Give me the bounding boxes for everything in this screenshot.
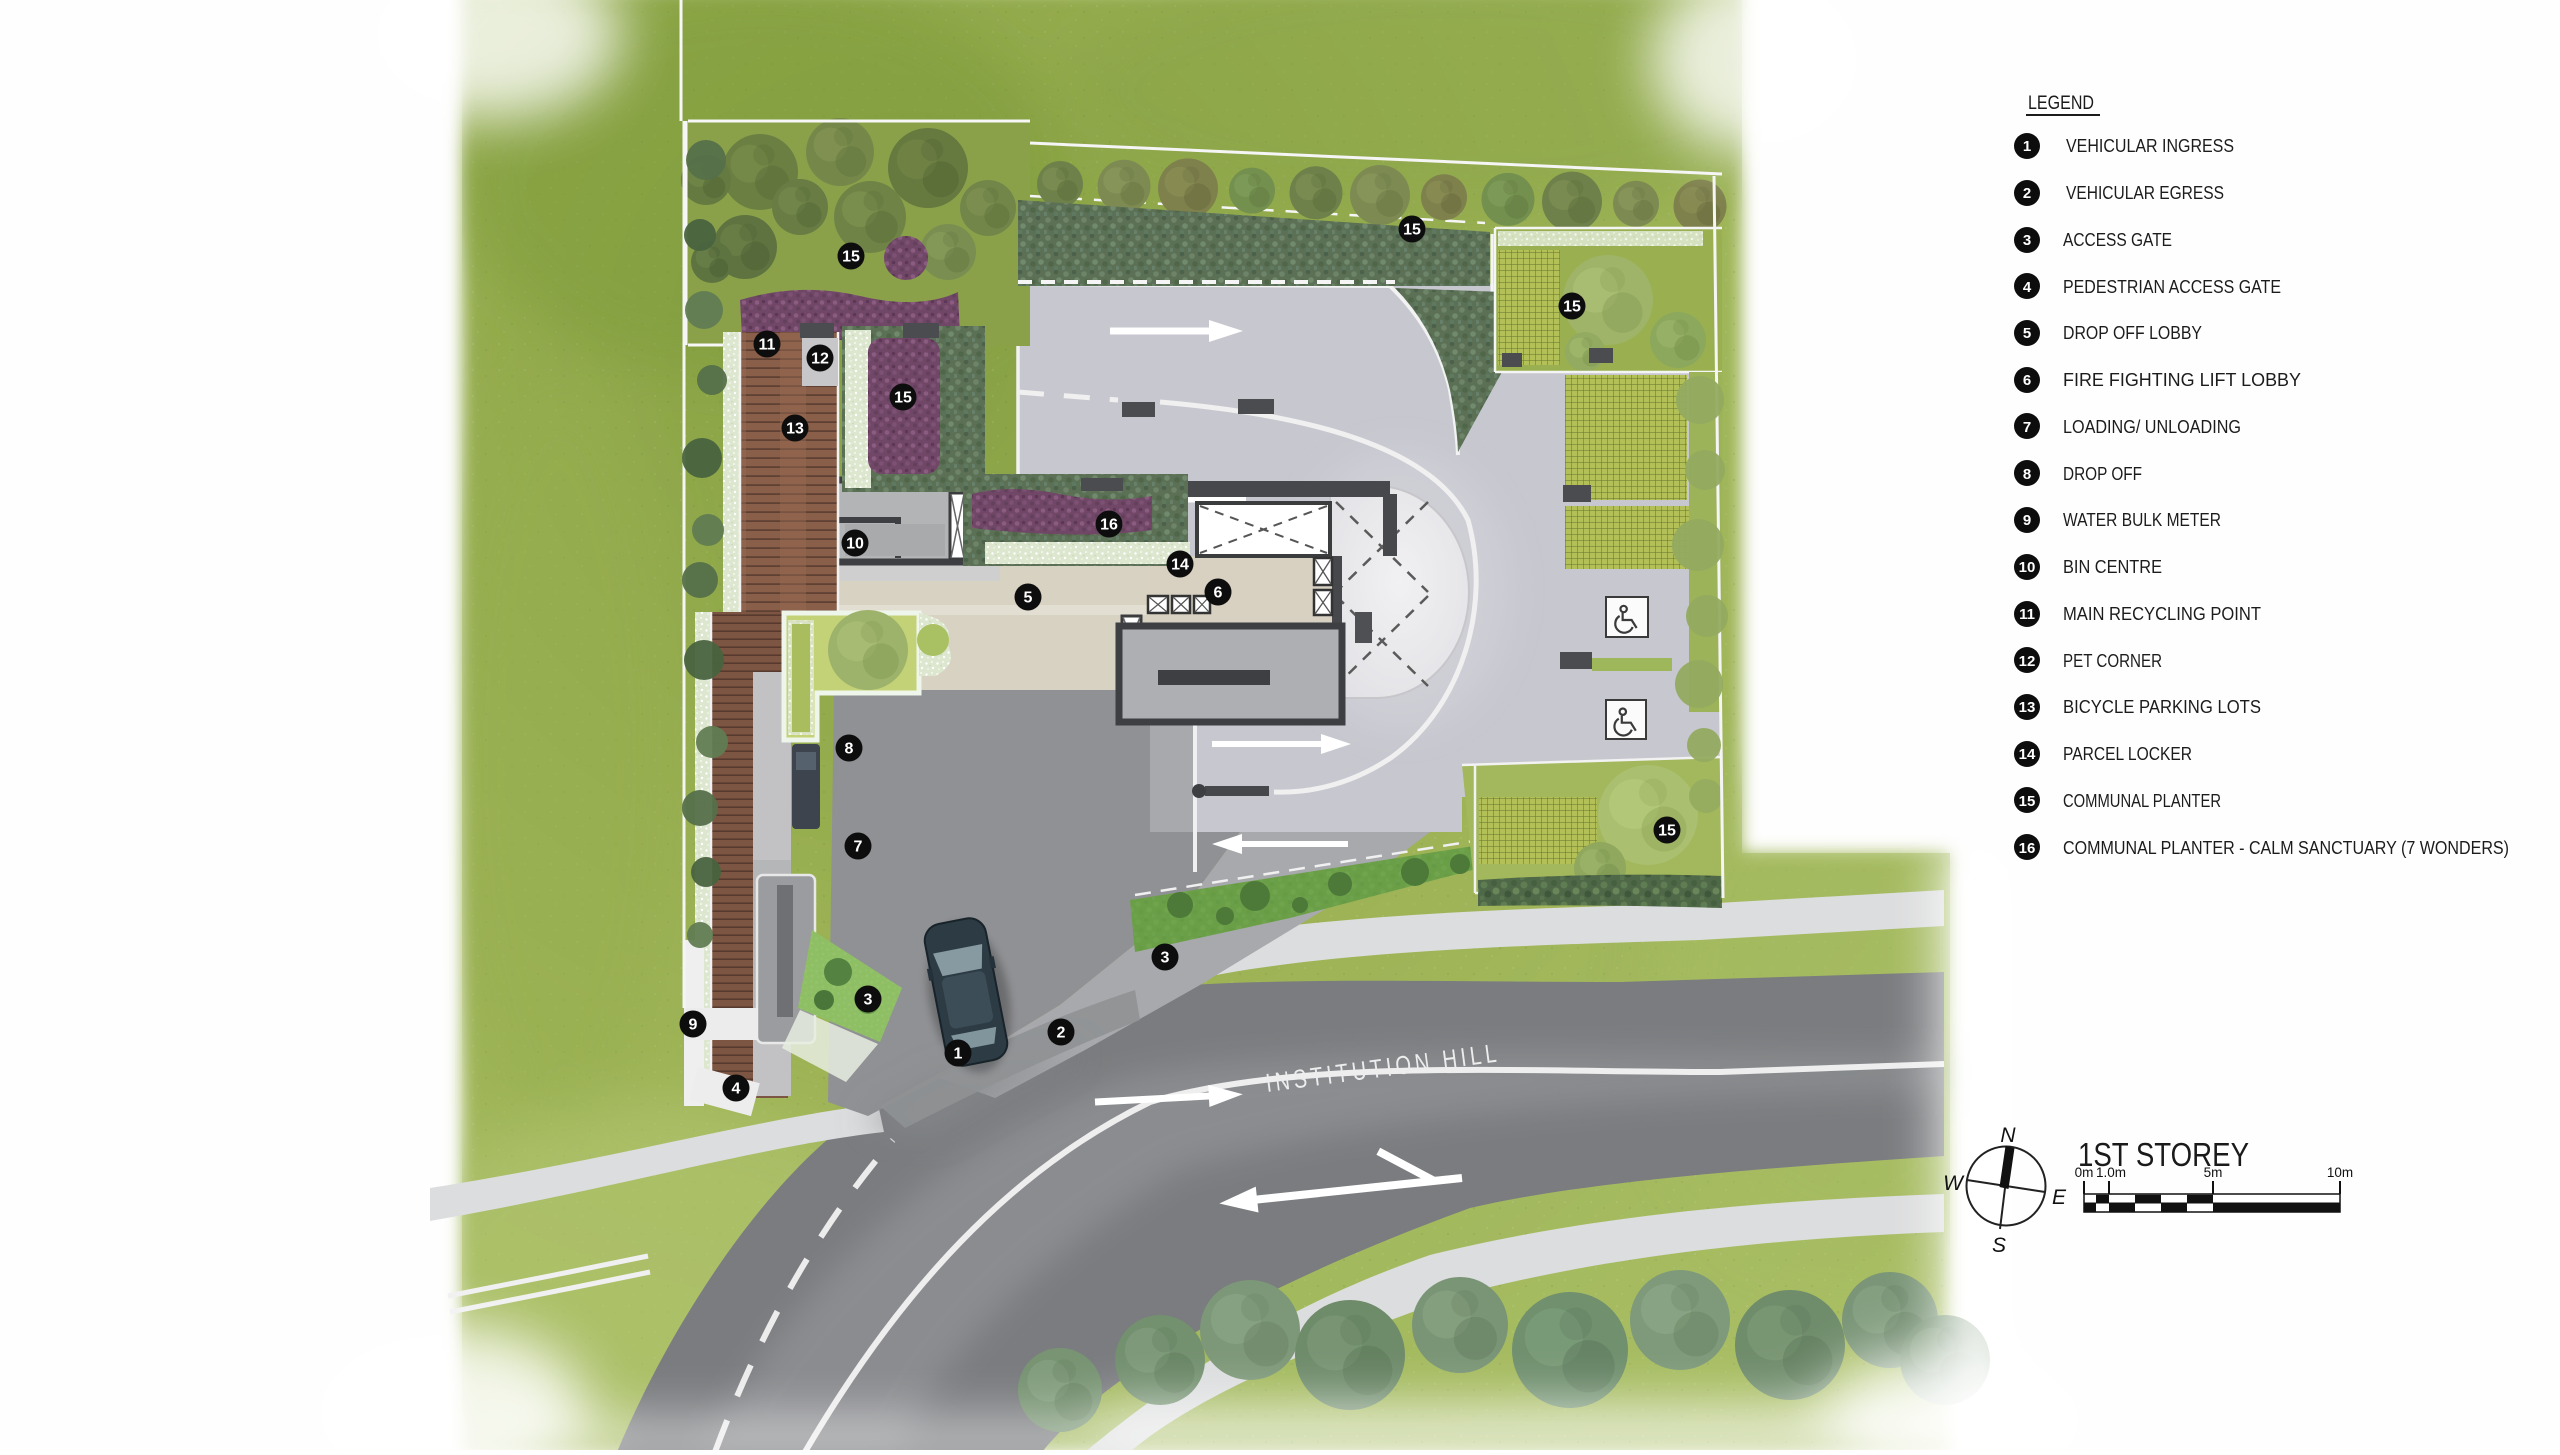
svg-text:FIRE FIGHTING LIFT LOBBY: FIRE FIGHTING LIFT LOBBY [2063, 370, 2301, 390]
svg-text:10: 10 [2019, 559, 2036, 576]
svg-text:12: 12 [2019, 653, 2036, 670]
svg-text:W: W [1943, 1172, 1965, 1195]
svg-text:LEGEND: LEGEND [2028, 93, 2094, 114]
svg-text:11: 11 [2019, 606, 2035, 623]
svg-text:N: N [2000, 1124, 2016, 1147]
svg-text:DROP OFF LOBBY: DROP OFF LOBBY [2063, 323, 2202, 343]
svg-text:LOADING/ UNLOADING: LOADING/ UNLOADING [2063, 417, 2241, 437]
svg-text:4: 4 [732, 1081, 741, 1098]
svg-text:9: 9 [689, 1017, 698, 1034]
svg-text:6: 6 [1214, 585, 1223, 602]
svg-text:DROP OFF: DROP OFF [2063, 464, 2142, 484]
svg-text:VEHICULAR INGRESS: VEHICULAR INGRESS [2066, 136, 2234, 156]
svg-text:BICYCLE PARKING LOTS: BICYCLE PARKING LOTS [2063, 697, 2261, 717]
svg-text:15: 15 [1658, 823, 1676, 840]
svg-text:5: 5 [2023, 325, 2031, 342]
svg-text:15: 15 [842, 249, 860, 266]
svg-text:4: 4 [2023, 279, 2032, 296]
svg-text:PET CORNER: PET CORNER [2063, 651, 2162, 671]
svg-text:3: 3 [2023, 232, 2031, 249]
svg-text:12: 12 [811, 351, 829, 368]
svg-text:E: E [2052, 1186, 2067, 1209]
svg-text:ACCESS GATE: ACCESS GATE [2063, 230, 2172, 250]
svg-text:5: 5 [1024, 590, 1033, 607]
svg-text:15: 15 [894, 390, 912, 407]
svg-text:10m: 10m [2327, 1165, 2353, 1180]
svg-text:BIN CENTRE: BIN CENTRE [2063, 557, 2162, 577]
svg-text:VEHICULAR EGRESS: VEHICULAR EGRESS [2066, 183, 2224, 203]
svg-text:PEDESTRIAN ACCESS GATE: PEDESTRIAN ACCESS GATE [2063, 277, 2281, 297]
svg-text:16: 16 [2019, 840, 2036, 857]
svg-text:2: 2 [1057, 1025, 1066, 1042]
svg-text:15: 15 [1403, 222, 1421, 239]
svg-text:3: 3 [864, 992, 873, 1009]
svg-text:COMMUNAL PLANTER - CALM SANCTU: COMMUNAL PLANTER - CALM SANCTUARY (7 WON… [2063, 838, 2509, 858]
svg-text:15: 15 [1563, 299, 1581, 316]
svg-text:1: 1 [2023, 138, 2031, 155]
svg-text:16: 16 [1100, 517, 1118, 534]
svg-text:MAIN RECYCLING POINT: MAIN RECYCLING POINT [2063, 604, 2261, 624]
svg-text:2: 2 [2023, 185, 2031, 202]
svg-text:13: 13 [786, 421, 804, 438]
svg-text:PARCEL LOCKER: PARCEL LOCKER [2063, 744, 2192, 764]
svg-text:7: 7 [2023, 419, 2031, 436]
svg-text:10: 10 [846, 536, 864, 553]
svg-text:COMMUNAL PLANTER: COMMUNAL PLANTER [2063, 791, 2221, 811]
svg-text:6: 6 [2023, 372, 2031, 389]
svg-text:13: 13 [2019, 699, 2036, 716]
svg-text:7: 7 [854, 839, 863, 856]
svg-text:15: 15 [2019, 793, 2036, 810]
svg-text:WATER BULK METER: WATER BULK METER [2063, 510, 2221, 530]
svg-text:9: 9 [2023, 512, 2031, 529]
svg-text:5m: 5m [2204, 1165, 2223, 1180]
svg-text:14: 14 [2019, 746, 2036, 763]
svg-text:8: 8 [2023, 466, 2031, 483]
svg-text:1.0m: 1.0m [2096, 1165, 2126, 1180]
svg-text:1: 1 [954, 1046, 963, 1063]
svg-text:14: 14 [1171, 557, 1189, 574]
svg-text:11: 11 [759, 337, 776, 354]
svg-text:0m: 0m [2075, 1165, 2094, 1180]
svg-text:3: 3 [1161, 950, 1170, 967]
svg-text:8: 8 [845, 741, 854, 758]
svg-text:S: S [1992, 1234, 2006, 1257]
